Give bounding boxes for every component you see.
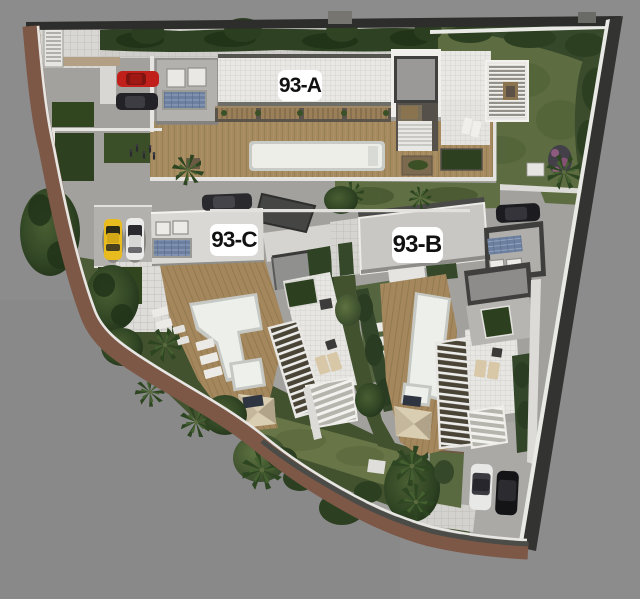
svg-text:93-C: 93-C [211, 227, 257, 252]
svg-text:93-B: 93-B [393, 231, 442, 258]
svg-text:93-A: 93-A [279, 74, 322, 97]
